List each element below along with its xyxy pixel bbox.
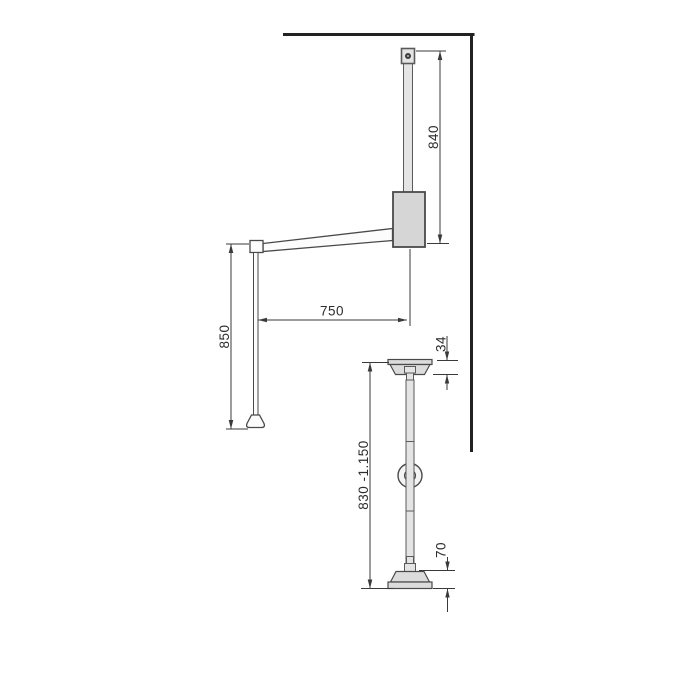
- cap-screw-center: [407, 55, 409, 57]
- arrowhead-up-icon: [229, 244, 234, 253]
- dim-label-70: 70: [434, 542, 449, 558]
- arrowhead-up-icon: [368, 363, 373, 372]
- arrowhead-up-icon: [438, 51, 443, 60]
- dimension-850: 850: [217, 244, 249, 429]
- top-plate-bar: [388, 360, 432, 365]
- pull-rod-handle-tip: [247, 415, 265, 428]
- arrowhead-down-icon: [229, 420, 234, 429]
- dim-label-pole-range: 830 -1.150: [356, 440, 371, 510]
- arrowhead-right-icon: [398, 318, 407, 322]
- dimension-34: 34: [433, 336, 458, 390]
- arrowhead-down-icon: [438, 235, 443, 244]
- dimension-750: 750: [258, 249, 410, 326]
- pull-rod: [254, 253, 259, 416]
- mechanism-housing: [393, 192, 425, 247]
- bottom-plate-flange: [388, 582, 432, 589]
- bottom-connector-nut: [405, 564, 416, 573]
- mount-bar: [404, 49, 413, 192]
- top-connector-nut: [405, 367, 416, 374]
- bottom-plate-body: [391, 572, 430, 583]
- dim-label-840: 840: [426, 125, 441, 149]
- dim-label-34: 34: [434, 336, 449, 352]
- dim-label-850: 850: [217, 324, 232, 348]
- arrowhead-up-icon: [445, 375, 449, 384]
- dimension-830-1150: 830 -1.150: [356, 363, 393, 589]
- arrowhead-down-icon: [368, 580, 373, 589]
- arrowhead-left-icon: [258, 318, 267, 322]
- telescopic-pole: [406, 380, 414, 564]
- swing-arm: [263, 229, 393, 252]
- front-view-figure: [388, 360, 432, 589]
- top-connector-stem: [407, 373, 414, 381]
- technical-drawing-page: 840 750 850: [0, 0, 700, 700]
- dim-label-750: 750: [320, 304, 344, 319]
- arm-end-joint: [250, 241, 263, 253]
- bottom-connector-stem: [407, 557, 414, 565]
- arrowhead-up-icon: [445, 589, 449, 598]
- drawing-svg: 840 750 850: [0, 0, 700, 700]
- arrowhead-down-icon: [445, 562, 449, 571]
